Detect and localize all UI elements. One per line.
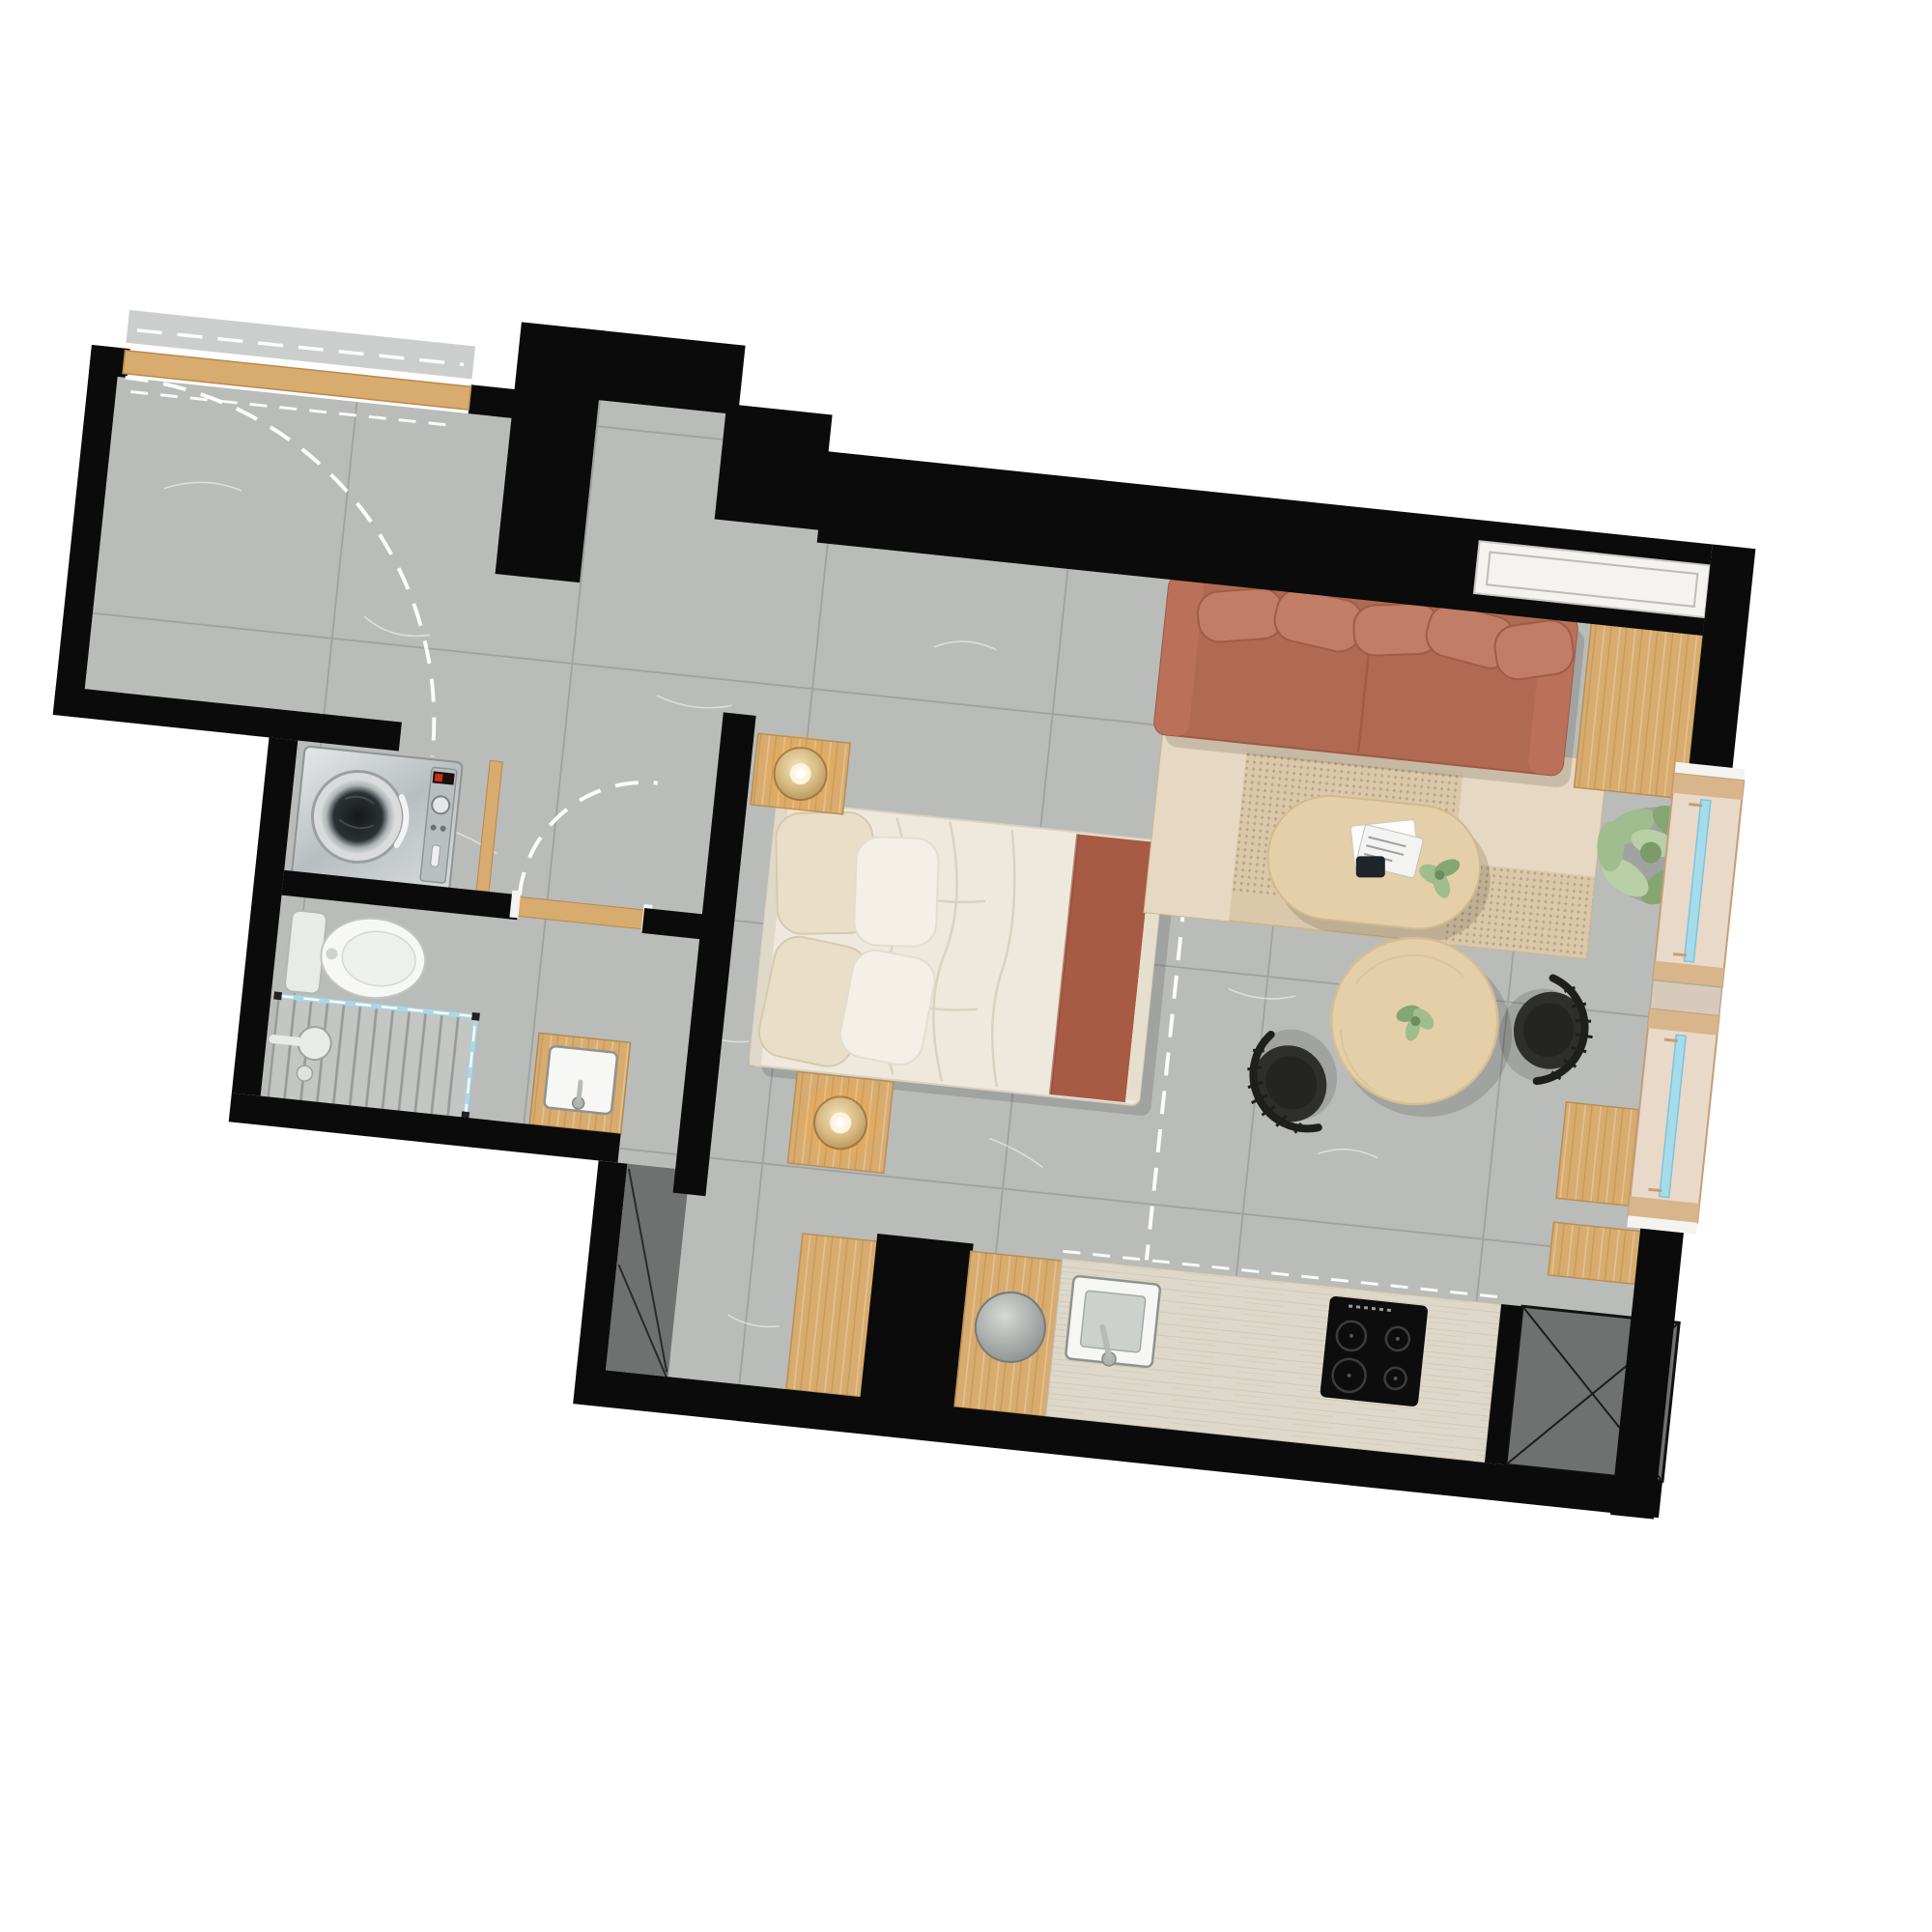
floor-plan-container: Studio apartment floor plan [0, 252, 1797, 1628]
vanity-sink [529, 1033, 630, 1133]
induction-cooktop [1320, 1295, 1428, 1406]
shower-control-icon [297, 1065, 314, 1082]
kitchen-sink [1065, 1276, 1161, 1371]
page-canvas: Studio apartment floor plan [0, 0, 1932, 1932]
floor-plan-svg: Studio apartment floor plan [0, 252, 1797, 1623]
nightstand-bottom [787, 1071, 893, 1173]
washing-machine [292, 746, 463, 891]
washer-knob-icon [431, 795, 450, 814]
utility-closet [292, 746, 463, 891]
pillow [853, 837, 939, 948]
